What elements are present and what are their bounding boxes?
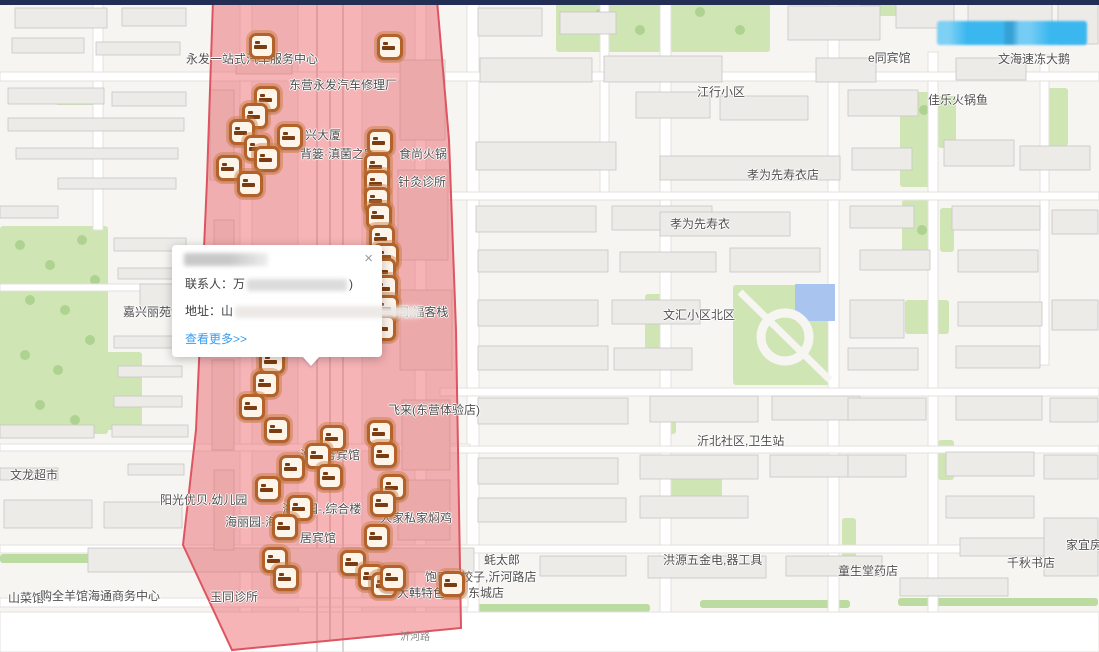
map-label: 沂河路 bbox=[400, 628, 430, 643]
hotel-marker[interactable] bbox=[439, 571, 465, 597]
map-label: 购全羊馆海通商务中心 bbox=[40, 587, 160, 604]
hotel-marker[interactable] bbox=[367, 129, 393, 155]
address-label: 地址： bbox=[185, 304, 221, 318]
address-value-prefix: 山 bbox=[221, 304, 233, 318]
view-more-link[interactable]: 查看更多>> bbox=[185, 330, 247, 347]
hotel-marker[interactable] bbox=[371, 442, 397, 468]
map-label: 沂北社区,卫生站 bbox=[697, 432, 784, 449]
map-label: 玉同诊所 bbox=[210, 588, 258, 605]
map-label: 佳乐火锅鱼 bbox=[928, 91, 988, 108]
hotel-marker[interactable] bbox=[254, 146, 280, 172]
map-label: 山菜馆 bbox=[8, 589, 44, 606]
map-label: 童生堂药店 bbox=[838, 562, 898, 579]
map-label: 千秋书店 bbox=[1007, 554, 1055, 571]
map-label: 海丽园-海 bbox=[225, 513, 277, 530]
info-popup: × 联系人：万) 地址：山 查看更多>> bbox=[172, 245, 382, 357]
map-label: 东城店 bbox=[468, 584, 504, 601]
popup-address-row: 地址：山 bbox=[185, 302, 423, 319]
map-label: 兴大厦 bbox=[305, 126, 341, 143]
map-label: 蚝太郎 bbox=[484, 551, 520, 568]
hotel-marker[interactable] bbox=[370, 491, 396, 517]
hotel-marker[interactable] bbox=[380, 565, 406, 591]
map-label: 居宾馆 bbox=[300, 529, 336, 546]
map-label: 阳光优贝,幼儿园 bbox=[160, 491, 247, 508]
popup-contact-row: 联系人：万) bbox=[185, 275, 353, 292]
hotel-marker[interactable] bbox=[264, 417, 290, 443]
hotel-marker[interactable] bbox=[272, 514, 298, 540]
map-label: 洪源五金电,器工具 bbox=[663, 551, 762, 568]
hotel-marker[interactable] bbox=[377, 34, 403, 60]
map-label: 飞来(东营体验店) bbox=[388, 401, 480, 418]
address-value-redacted bbox=[235, 306, 421, 318]
hotel-marker[interactable] bbox=[249, 33, 275, 59]
map-label: 孝为先寿衣 bbox=[670, 215, 730, 232]
map-label: 江行小区 bbox=[697, 83, 745, 100]
map-label: 嘉兴丽苑 bbox=[123, 303, 171, 320]
hotel-marker[interactable] bbox=[279, 455, 305, 481]
map-label: 孝为先寿衣店 bbox=[747, 166, 819, 183]
popup-title-redacted bbox=[184, 253, 268, 266]
map-viewport[interactable]: 永发一站式汽车服务中心东营永发汽车修理厂兴大厦背篓·滇菌之家食尚火锅针灸诊所胡同… bbox=[0, 0, 1099, 652]
hotel-marker[interactable] bbox=[277, 124, 303, 150]
hotel-marker[interactable] bbox=[237, 171, 263, 197]
map-label: e同宾馆 bbox=[868, 49, 911, 66]
map-label: 东营永发汽车修理厂 bbox=[289, 76, 397, 93]
hotel-marker[interactable] bbox=[364, 524, 390, 550]
browser-top-edge bbox=[0, 0, 1099, 5]
hotel-marker[interactable] bbox=[317, 464, 343, 490]
hotel-marker[interactable] bbox=[239, 394, 265, 420]
contact-value-suffix: ) bbox=[349, 277, 353, 291]
top-right-action-button-redacted[interactable] bbox=[937, 21, 1087, 45]
contact-label: 联系人： bbox=[185, 277, 233, 291]
popup-close-button[interactable]: × bbox=[362, 249, 375, 268]
map-label: 文汇小区北区 bbox=[663, 306, 735, 323]
hotel-marker[interactable] bbox=[273, 565, 299, 591]
map-label: 文龙超市 bbox=[10, 466, 58, 483]
hotel-marker[interactable] bbox=[255, 476, 281, 502]
contact-value-prefix: 万 bbox=[233, 277, 245, 291]
map-label: 家宜房 bbox=[1066, 536, 1099, 553]
popup-pointer bbox=[302, 356, 320, 366]
map-label: 针灸诊所 bbox=[398, 173, 446, 190]
map-label: 文海速冻大鹅 bbox=[998, 50, 1070, 67]
map-label: 食尚火锅 bbox=[399, 145, 447, 162]
contact-value-redacted bbox=[247, 279, 347, 291]
